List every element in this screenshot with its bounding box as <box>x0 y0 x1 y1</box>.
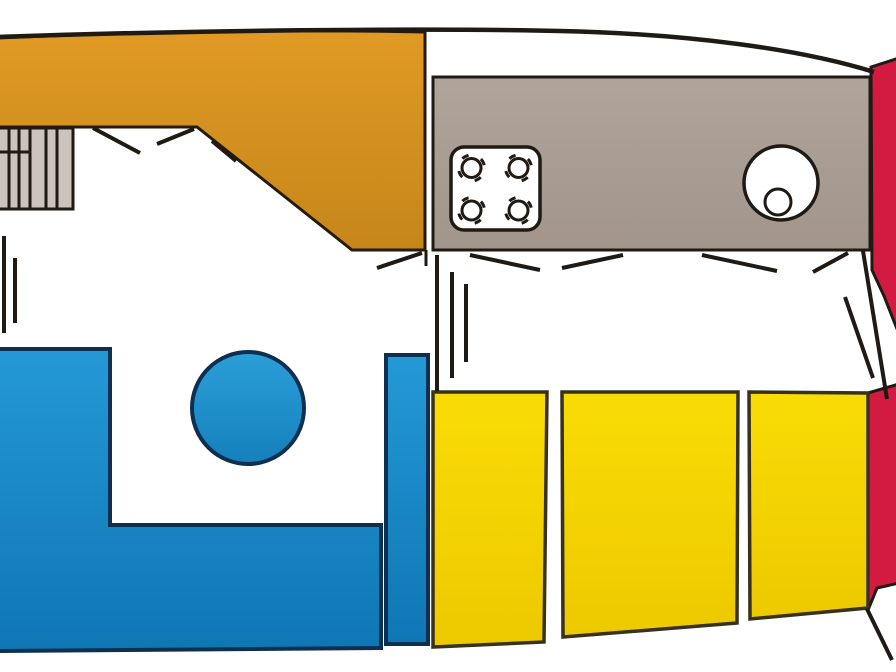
berth-2 <box>562 392 738 637</box>
door-swing-line <box>702 255 777 271</box>
stern-locker-upper <box>871 58 896 334</box>
berth-3 <box>749 392 868 619</box>
sink-drain <box>765 189 791 215</box>
boat-floorplan <box>0 0 896 672</box>
door-swing-line <box>377 253 422 268</box>
door-swing-line <box>562 255 623 268</box>
settee-u-shape <box>0 349 381 651</box>
stove <box>451 147 540 230</box>
stove-burner <box>462 159 481 178</box>
stove-burner <box>509 201 528 220</box>
settee-side-bench <box>386 355 428 644</box>
hull-edge-line <box>867 609 892 660</box>
door-swing-line <box>93 128 140 153</box>
steps-box <box>0 128 73 209</box>
floorplan-canvas <box>0 0 896 672</box>
door-swing-line <box>470 255 540 270</box>
door-swing-line <box>157 129 194 144</box>
door-swing-line <box>813 253 848 272</box>
stove-burner <box>509 159 528 178</box>
sink <box>744 146 818 220</box>
stern-locker-lower <box>868 384 896 610</box>
companionway-steps <box>0 128 73 209</box>
saloon-table <box>192 352 304 464</box>
berth-1 <box>433 392 547 647</box>
hull-edge-line <box>845 297 873 378</box>
stove-burner <box>462 201 481 220</box>
